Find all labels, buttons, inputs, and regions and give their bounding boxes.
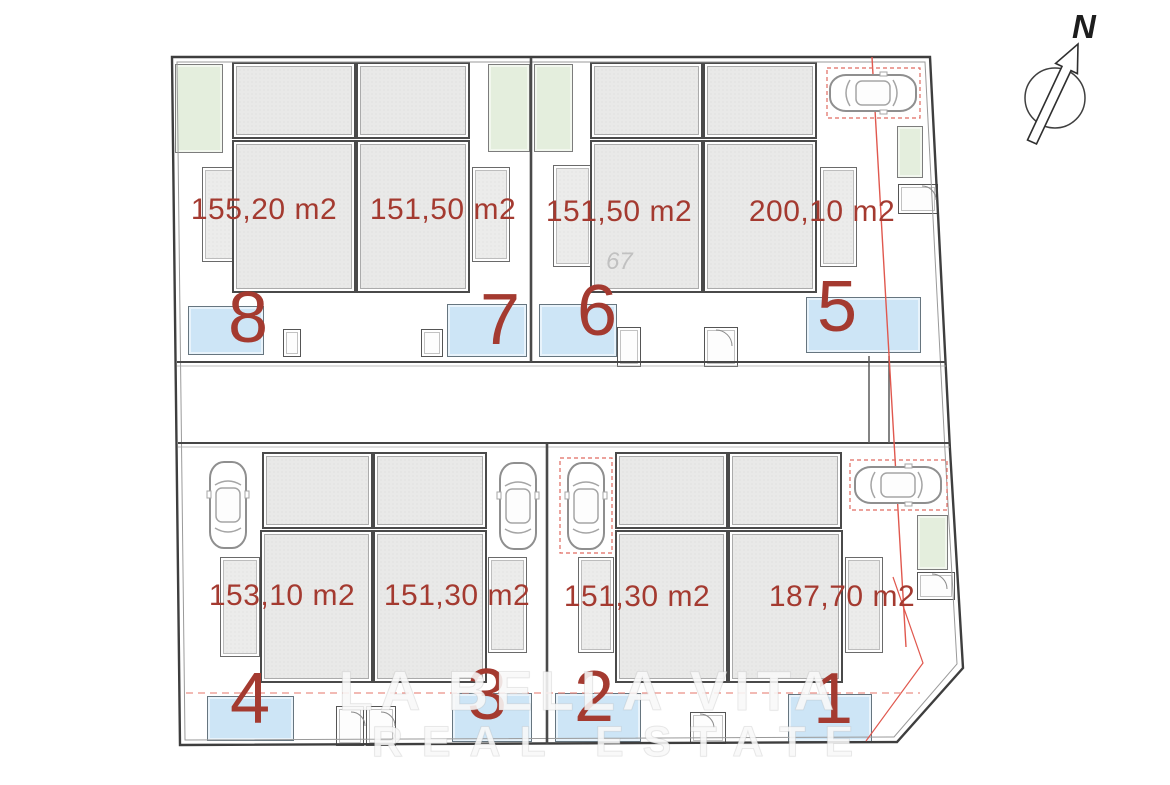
stray-watermark-mark: 67: [606, 248, 633, 276]
area-label-plot-1: 187,70 m2: [769, 580, 915, 614]
plot-number-2: 2: [574, 661, 614, 733]
area-label-plot-4: 153,10 m2: [209, 579, 355, 613]
car-icon: [565, 463, 607, 549]
area-label-plot-2: 151,30 m2: [564, 580, 710, 614]
car-icon: [855, 464, 941, 506]
site-boundary-inner-line: [177, 62, 957, 740]
area-label-plot-3: 151,30 m2: [384, 579, 530, 613]
plot-number-7: 7: [480, 284, 520, 356]
plot-number-1: 1: [813, 663, 853, 735]
plot-number-5: 5: [817, 271, 857, 343]
door-arc: [351, 186, 947, 728]
area-label-plot-6: 151,50 m2: [546, 195, 692, 229]
area-label-plot-7: 151,50 m2: [370, 193, 516, 227]
site-boundary-outline: [172, 57, 963, 745]
car-icon: [207, 462, 249, 548]
car-icon: [830, 72, 916, 114]
plot-number-8: 8: [228, 282, 268, 354]
area-label-plot-5: 200,10 m2: [749, 195, 895, 229]
plot-number-6: 6: [577, 275, 617, 347]
plot-number-3: 3: [467, 659, 507, 731]
walkway-edge: [869, 356, 889, 443]
area-label-plot-8: 155,20 m2: [191, 193, 337, 227]
red-boundary-line: [872, 57, 906, 647]
compass-north-label: N: [1072, 8, 1096, 46]
plot-number-4: 4: [230, 663, 270, 735]
site-plan: 155,20 m2 151,50 m2 151,50 m2 200,10 m2 …: [0, 0, 1170, 785]
north-arrow-icon: [1025, 44, 1085, 144]
car-icon: [497, 463, 539, 549]
